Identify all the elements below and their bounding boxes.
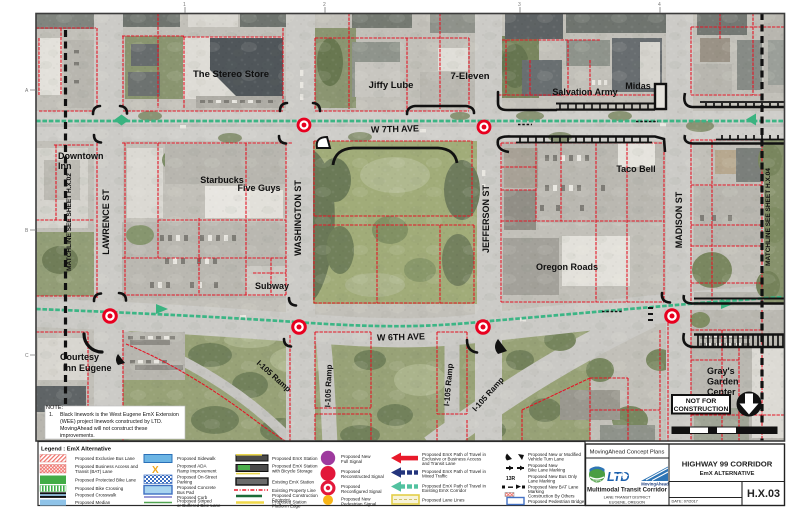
svg-text:Existing EmX Corridor: Existing EmX Corridor: [422, 488, 467, 493]
svg-text:Reconfigured Signal: Reconfigured Signal: [341, 489, 382, 494]
svg-text:1.: 1.: [49, 412, 53, 418]
svg-text:with Bicycle Storage: with Bicycle Storage: [272, 469, 313, 474]
svg-text:Midas: Midas: [625, 81, 651, 91]
svg-text:CONSTRUCTION: CONSTRUCTION: [674, 406, 729, 413]
svg-text:H.X.03: H.X.03: [747, 488, 780, 500]
svg-text:JEFFERSON ST: JEFFERSON ST: [481, 184, 491, 253]
svg-text:Transit (BAT) Lane: Transit (BAT) Lane: [75, 469, 113, 474]
svg-text:Black linework is the West Eug: Black linework is the West Eugene EmX Ex…: [60, 412, 179, 418]
svg-text:C: C: [25, 353, 29, 359]
svg-text:HIGHWAY 99 CORRIDOR: HIGHWAY 99 CORRIDOR: [682, 460, 773, 469]
svg-text:13R: 13R: [506, 476, 516, 482]
svg-text:Reconstructed Signal: Reconstructed Signal: [341, 474, 384, 479]
svg-text:Proposed Protected Bike Lane: Proposed Protected Bike Lane: [75, 478, 137, 483]
svg-text:X: X: [152, 465, 159, 476]
svg-text:Courtesy: Courtesy: [60, 352, 99, 362]
svg-text:2: 2: [323, 2, 326, 8]
svg-text:Full Signal: Full Signal: [341, 459, 362, 464]
svg-text:Proposed Bike Crossing: Proposed Bike Crossing: [75, 486, 124, 491]
svg-text:1: 1: [183, 2, 186, 8]
svg-text:Multimodal Transit Corridor: Multimodal Transit Corridor: [587, 487, 668, 494]
svg-text:Construction By Others: Construction By Others: [528, 494, 575, 499]
svg-text:Garden: Garden: [707, 377, 739, 387]
svg-text:LAWRENCE ST: LAWRENCE ST: [101, 189, 111, 255]
svg-text:EmX ALTERNATIVE: EmX ALTERNATIVE: [700, 471, 755, 477]
svg-text:MATCHLINE SEE SHEET H.X.04: MATCHLINE SEE SHEET H.X.04: [765, 168, 772, 266]
svg-text:Proposed EmX Station: Proposed EmX Station: [272, 456, 318, 461]
svg-text:3: 3: [518, 2, 521, 8]
svg-text:Gray's: Gray's: [707, 366, 735, 376]
svg-text:MATCHLINE SEE SHEET H.X.02: MATCHLINE SEE SHEET H.X.02: [66, 173, 73, 271]
svg-text:WASHINGTON ST: WASHINGTON ST: [293, 180, 303, 256]
svg-text:Lane Marking: Lane Marking: [528, 479, 556, 484]
svg-text:LTD: LTD: [607, 470, 629, 484]
svg-text:MovingAhead Concept Plans: MovingAhead Concept Plans: [590, 450, 665, 456]
svg-text:NOT FOR: NOT FOR: [686, 398, 717, 405]
svg-text:Proposed Crosswalk: Proposed Crosswalk: [75, 493, 117, 498]
svg-text:Vehicle Turn Lane: Vehicle Turn Lane: [528, 457, 565, 462]
svg-text:Existing EmX Station: Existing EmX Station: [272, 480, 315, 485]
svg-text:Subway: Subway: [255, 281, 289, 291]
svg-text:Inn Eugene: Inn Eugene: [63, 363, 112, 373]
svg-text:I-105 Ramp: I-105 Ramp: [323, 364, 333, 407]
svg-text:Legend : EmX Alternative: Legend : EmX Alternative: [41, 447, 112, 453]
svg-text:Proposed Pedestrian Bridge: Proposed Pedestrian Bridge: [528, 499, 585, 504]
svg-text:Taco Bell: Taco Bell: [616, 164, 655, 174]
svg-text:The Stereo Store: The Stereo Store: [193, 69, 269, 80]
svg-text:Jiffy Lube: Jiffy Lube: [369, 80, 414, 91]
svg-text:Oregon Roads: Oregon Roads: [536, 262, 598, 272]
svg-text:improvements.: improvements.: [60, 433, 95, 439]
svg-text:4: 4: [658, 2, 661, 8]
svg-text:Proposed Median: Proposed Median: [75, 500, 111, 505]
svg-text:or Buffered Bike Lane: or Buffered Bike Lane: [177, 503, 221, 508]
svg-text:and Transit Lane: and Transit Lane: [422, 461, 456, 466]
svg-text:Eugene: Eugene: [593, 479, 603, 483]
svg-text:Parking: Parking: [177, 480, 193, 485]
svg-text:Mixed Traffic: Mixed Traffic: [422, 474, 448, 479]
svg-text:EUGENE, OREGON: EUGENE, OREGON: [609, 500, 645, 505]
svg-text:7-Eleven: 7-Eleven: [450, 71, 489, 82]
svg-text:Salvation Army: Salvation Army: [552, 87, 617, 97]
svg-text:Inn: Inn: [58, 161, 72, 171]
svg-text:W 6TH AVE: W 6TH AVE: [377, 331, 425, 342]
svg-text:DATE: 07/2017: DATE: 07/2017: [672, 499, 698, 504]
svg-text:Downtown: Downtown: [58, 151, 104, 161]
svg-text:Pedestrian Signal: Pedestrian Signal: [341, 502, 376, 507]
svg-text:Five Guys: Five Guys: [237, 183, 280, 193]
svg-text:MovingAhead will not construct: MovingAhead will not construct these: [60, 426, 147, 432]
svg-text:Proposed Sidewalk: Proposed Sidewalk: [177, 456, 216, 461]
svg-text:Bike Lane Marking: Bike Lane Marking: [528, 468, 566, 473]
svg-text:Platform Edge: Platform Edge: [272, 504, 301, 509]
svg-text:(WEE) project linework constru: (WEE) project linework constructed by LT…: [60, 419, 162, 425]
svg-text:Proposed Exclusive Bus Lane: Proposed Exclusive Bus Lane: [75, 456, 135, 461]
svg-text:Proposed Lane Lines: Proposed Lane Lines: [422, 498, 465, 503]
svg-text:Ramp Improvement: Ramp Improvement: [177, 469, 217, 474]
svg-text:MADISON ST: MADISON ST: [674, 191, 684, 248]
svg-text:NOTE:: NOTE:: [46, 405, 64, 411]
svg-text:W 7TH AVE: W 7TH AVE: [371, 123, 419, 134]
